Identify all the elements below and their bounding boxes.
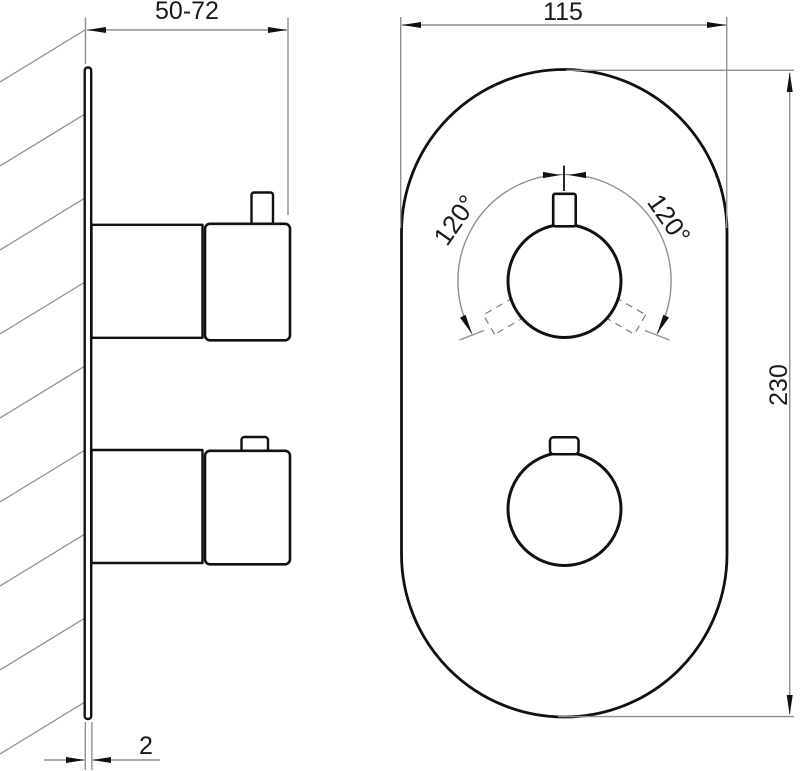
bottom-knob-handle — [550, 437, 579, 454]
side-view — [0, 30, 290, 754]
dimension-wall-offset: 50-72 — [86, 0, 289, 215]
top-knob-side-head — [205, 224, 290, 340]
plate-width-label: 115 — [543, 0, 583, 26]
mixer-installation-drawing: 120° 120° 50-72 115 — [0, 0, 800, 771]
plate-thickness-label: 2 — [139, 732, 153, 760]
bottom-knob-side-body — [92, 450, 203, 563]
wall-hatching — [0, 30, 85, 754]
top-knob-handle — [553, 194, 576, 227]
bottom-knob-side-head — [205, 451, 290, 565]
front-view: 120° 120° — [402, 70, 728, 718]
top-knob-side-body — [92, 225, 203, 338]
trim-plate-side — [85, 68, 92, 720]
top-knob-side — [92, 193, 291, 341]
top-knob-circle — [508, 225, 621, 338]
bottom-knob-side — [92, 437, 291, 564]
dimension-plate-thickness: 2 — [44, 722, 160, 770]
bottom-knob-circle — [508, 453, 621, 566]
top-knob-side-handle — [252, 193, 274, 227]
wall-offset-label: 50-72 — [155, 0, 219, 25]
technical-drawing-page: 120° 120° 50-72 115 — [0, 0, 800, 771]
plate-height-label: 230 — [765, 364, 793, 406]
